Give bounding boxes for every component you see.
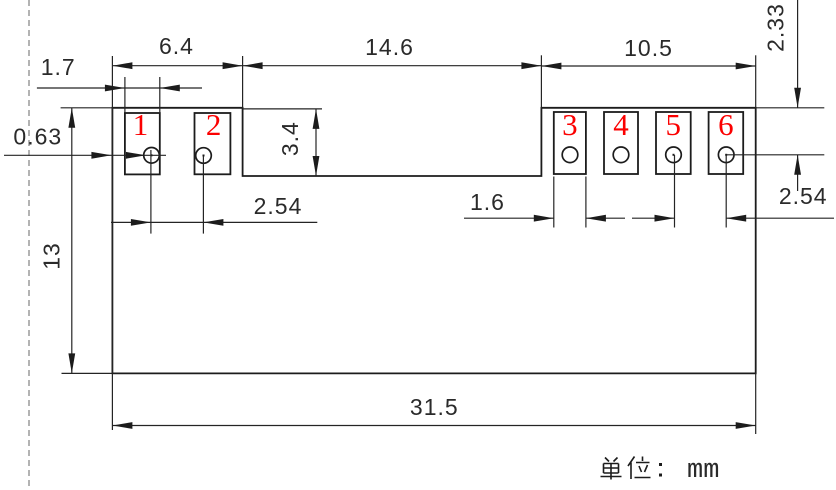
svg-text:4: 4 — [613, 107, 629, 142]
svg-text:mm: mm — [687, 456, 719, 486]
svg-text:3.4: 3.4 — [277, 121, 303, 156]
svg-text:10.5: 10.5 — [624, 35, 673, 61]
svg-text:1.7: 1.7 — [41, 54, 76, 80]
svg-text:14.6: 14.6 — [365, 34, 414, 60]
svg-text:1.6: 1.6 — [470, 189, 505, 215]
svg-text:0.63: 0.63 — [13, 124, 62, 150]
svg-text:6: 6 — [718, 107, 734, 142]
svg-text:2: 2 — [206, 107, 222, 142]
svg-text:2.54: 2.54 — [254, 193, 303, 219]
svg-text:13: 13 — [38, 242, 64, 270]
svg-text:1: 1 — [133, 107, 149, 142]
svg-text:5: 5 — [666, 107, 682, 142]
svg-text:3: 3 — [562, 107, 578, 142]
svg-text:2.33: 2.33 — [763, 3, 789, 52]
svg-text:31.5: 31.5 — [410, 394, 459, 420]
svg-text:2.54: 2.54 — [779, 183, 828, 209]
svg-text:6.4: 6.4 — [159, 33, 194, 59]
